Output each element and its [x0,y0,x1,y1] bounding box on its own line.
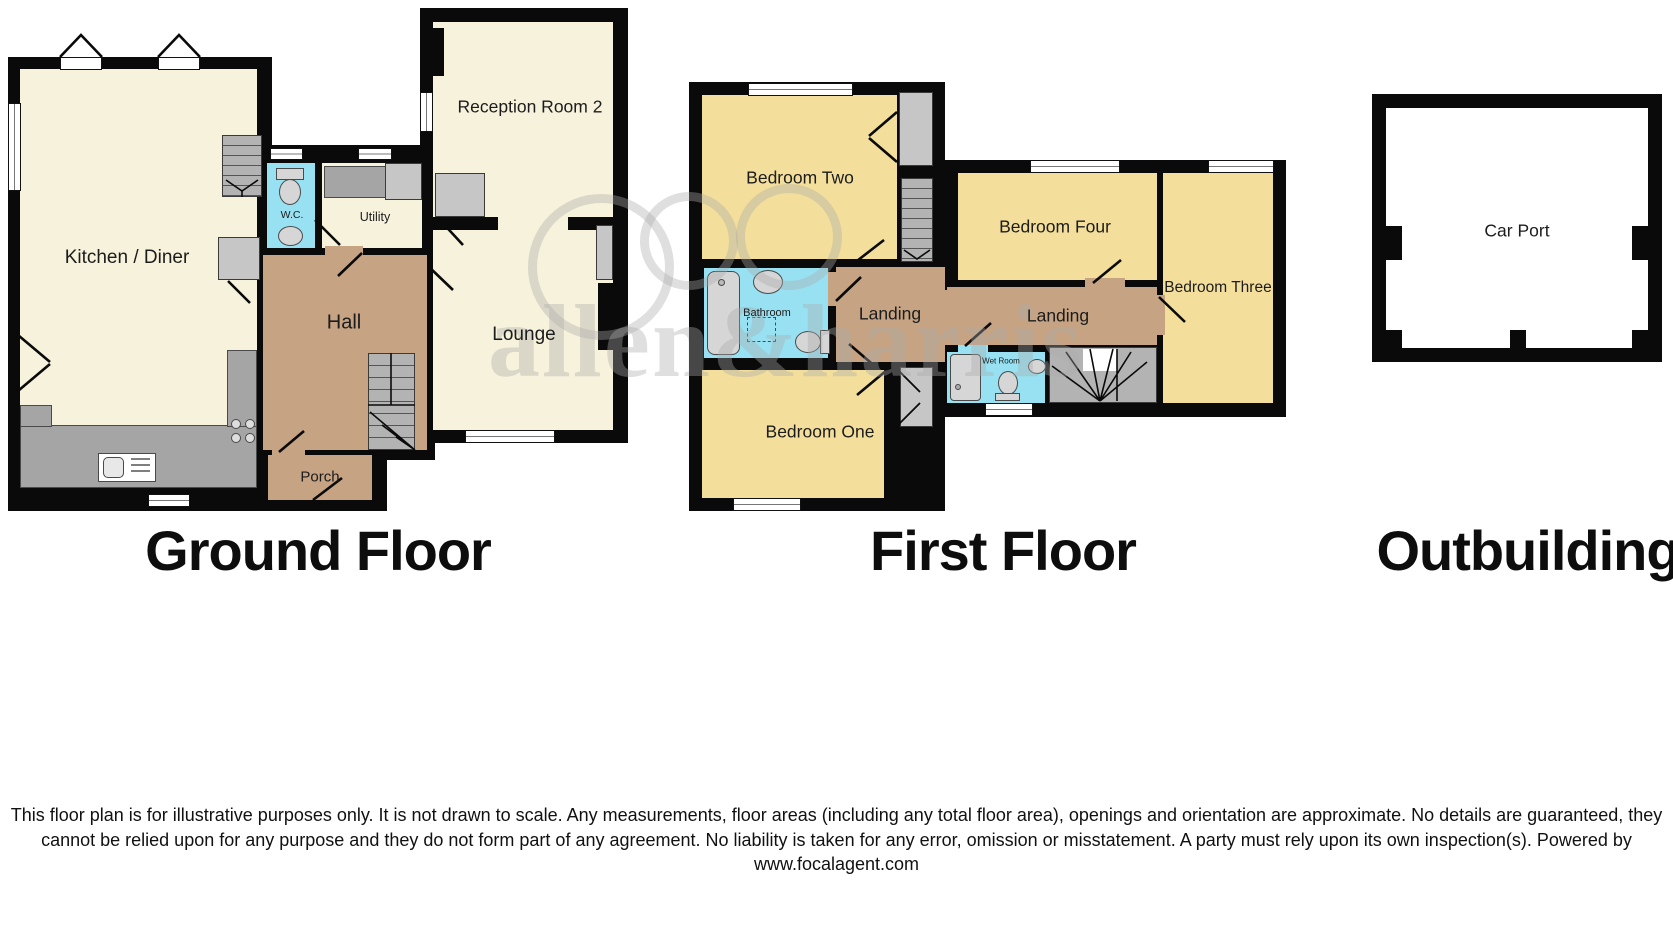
label-wc: W.C. [281,209,304,221]
floorplan-canvas: allen&harris Kitchen / Diner W.C. Utilit… [0,0,1673,936]
label-car-port: Car Port [1484,221,1549,242]
label-bathroom: Bathroom [743,307,791,319]
disclaimer-text: This floor plan is for illustrative purp… [0,803,1673,877]
label-porch: Porch [300,469,339,486]
door-chevron-icon [60,35,102,57]
label-landing-right: Landing [1027,306,1089,327]
label-reception-2: Reception Room 2 [458,97,603,118]
label-bedroom-three: Bedroom Three [1164,279,1271,297]
title-outbuilding: Outbuilding [1376,518,1673,583]
label-landing-left: Landing [859,304,921,325]
label-bedroom-four: Bedroom Four [999,217,1111,238]
label-hall: Hall [327,312,361,335]
label-bedroom-one: Bedroom One [766,422,875,443]
label-kitchen-diner: Kitchen / Diner [65,247,190,269]
door-chevron-icon [158,35,200,57]
title-first-floor: First Floor [870,518,1136,583]
label-bedroom-two: Bedroom Two [746,168,854,189]
linework-overlay [0,0,1673,936]
label-wet-room: Wet Room [982,357,1020,366]
title-ground-floor: Ground Floor [145,518,491,583]
label-lounge: Lounge [492,324,555,346]
label-utility: Utility [360,210,391,224]
